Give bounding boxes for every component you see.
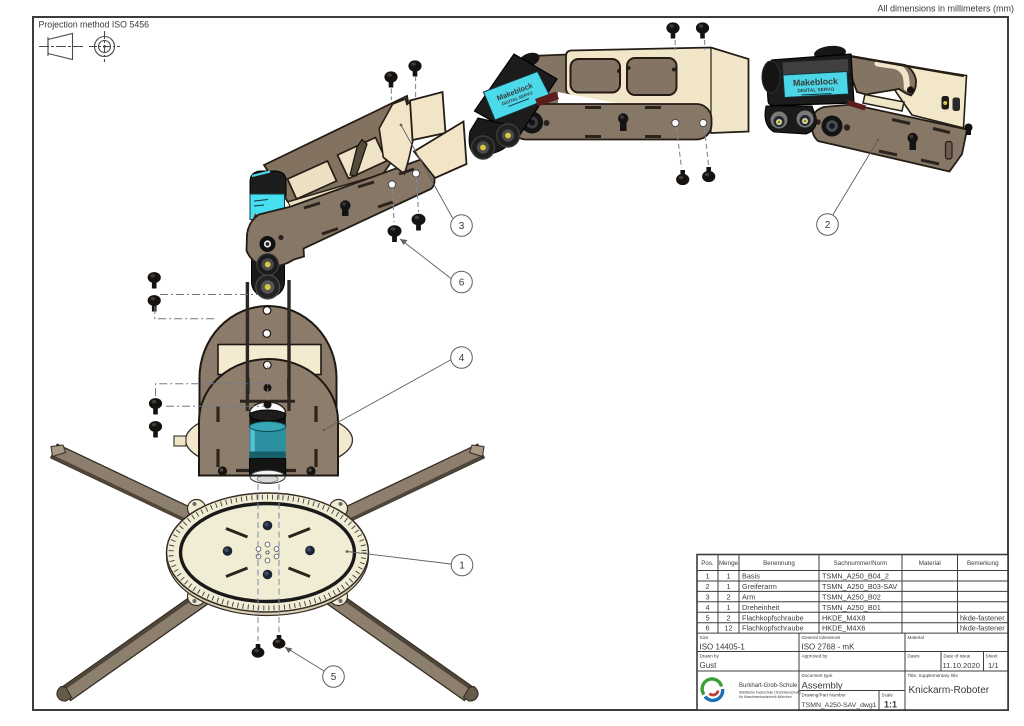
svg-text:Flachkopfschraube: Flachkopfschraube [742, 624, 804, 633]
svg-text:Material: Material [908, 635, 924, 640]
svg-text:11.10.2020: 11.10.2020 [943, 661, 980, 670]
svg-text:1: 1 [726, 603, 730, 612]
svg-text:5: 5 [331, 672, 337, 683]
svg-text:Arm: Arm [742, 592, 755, 601]
svg-text:1: 1 [705, 572, 709, 581]
svg-text:5: 5 [705, 613, 709, 622]
svg-text:Greiferarm: Greiferarm [742, 582, 777, 591]
svg-text:hkde-fastener: hkde-fastener [960, 613, 1005, 622]
svg-text:TSMN_A250_B02: TSMN_A250_B02 [822, 592, 881, 601]
svg-text:TSMN_A250_B01: TSMN_A250_B01 [822, 603, 881, 612]
svg-text:Sachnummer/Norm: Sachnummer/Norm [834, 560, 888, 567]
svg-text:HKDE_M4X8: HKDE_M4X8 [822, 613, 865, 622]
svg-text:Drawn by: Drawn by [700, 654, 720, 659]
svg-text:General tolerances: General tolerances [802, 635, 842, 640]
svg-text:Dates: Dates [908, 654, 921, 659]
svg-text:Approved by: Approved by [802, 654, 828, 659]
svg-text:für Maschinenbautechnik Münche: für Maschinenbautechnik München [739, 695, 792, 699]
svg-text:6: 6 [705, 624, 709, 633]
svg-text:ISO 2768 - mK: ISO 2768 - mK [802, 643, 856, 652]
svg-text:Gust: Gust [700, 661, 718, 670]
svg-text:TSMN_A250_B03-SAV: TSMN_A250_B03-SAV [822, 582, 897, 591]
svg-text:1:1: 1:1 [884, 700, 897, 710]
svg-text:Material: Material [919, 560, 941, 567]
svg-text:2: 2 [726, 592, 730, 601]
svg-text:Scale: Scale [882, 693, 894, 698]
svg-text:TSMN_A250-SAV_dwg1: TSMN_A250-SAV_dwg1 [802, 702, 878, 709]
svg-text:Pos.: Pos. [701, 560, 714, 567]
svg-text:6: 6 [459, 278, 465, 289]
svg-text:TSMN_A250_B04_2: TSMN_A250_B04_2 [822, 572, 889, 581]
svg-text:Drawing/Part Number: Drawing/Part Number [802, 693, 847, 698]
svg-text:Knickarm-Roboter: Knickarm-Roboter [909, 685, 990, 696]
svg-text:2: 2 [705, 582, 709, 591]
svg-text:Bemerkung: Bemerkung [967, 560, 999, 567]
svg-text:4: 4 [459, 353, 465, 364]
svg-text:hkde-fastener: hkde-fastener [960, 624, 1005, 633]
svg-text:HKDE_M4X6: HKDE_M4X6 [822, 624, 865, 633]
svg-text:Menge: Menge [719, 560, 738, 567]
svg-text:ISO 14405-1: ISO 14405-1 [700, 643, 746, 652]
svg-text:All dimensions in millimeters: All dimensions in millimeters (mm) [877, 4, 1014, 14]
svg-text:Title, Supplementary title: Title, Supplementary title [908, 673, 959, 678]
svg-text:1/1: 1/1 [988, 661, 999, 670]
svg-text:Makeblock: Makeblock [793, 76, 838, 88]
svg-text:Size: Size [700, 635, 709, 640]
svg-text:3: 3 [705, 592, 709, 601]
svg-text:Flachkopfschraube: Flachkopfschraube [742, 613, 804, 622]
svg-text:Basis: Basis [742, 572, 760, 581]
svg-text:Document type: Document type [802, 673, 833, 678]
svg-text:12: 12 [724, 624, 732, 633]
svg-text:Assembly: Assembly [802, 681, 843, 692]
svg-text:Projection method ISO 5456: Projection method ISO 5456 [39, 20, 150, 30]
svg-text:1: 1 [726, 572, 730, 581]
svg-text:2: 2 [825, 220, 831, 231]
svg-text:Date of issue: Date of issue [944, 654, 971, 659]
svg-text:Dreheinheit: Dreheinheit [742, 603, 779, 612]
svg-text:Benennung: Benennung [763, 560, 795, 567]
svg-text:4: 4 [705, 603, 709, 612]
svg-text:Sheet: Sheet [986, 654, 999, 659]
svg-text:Burkhart-Grob-Schule: Burkhart-Grob-Schule [739, 683, 798, 689]
svg-text:2: 2 [726, 613, 730, 622]
svg-text:1: 1 [459, 561, 465, 572]
svg-text:3: 3 [459, 221, 465, 232]
svg-text:1: 1 [726, 582, 730, 591]
